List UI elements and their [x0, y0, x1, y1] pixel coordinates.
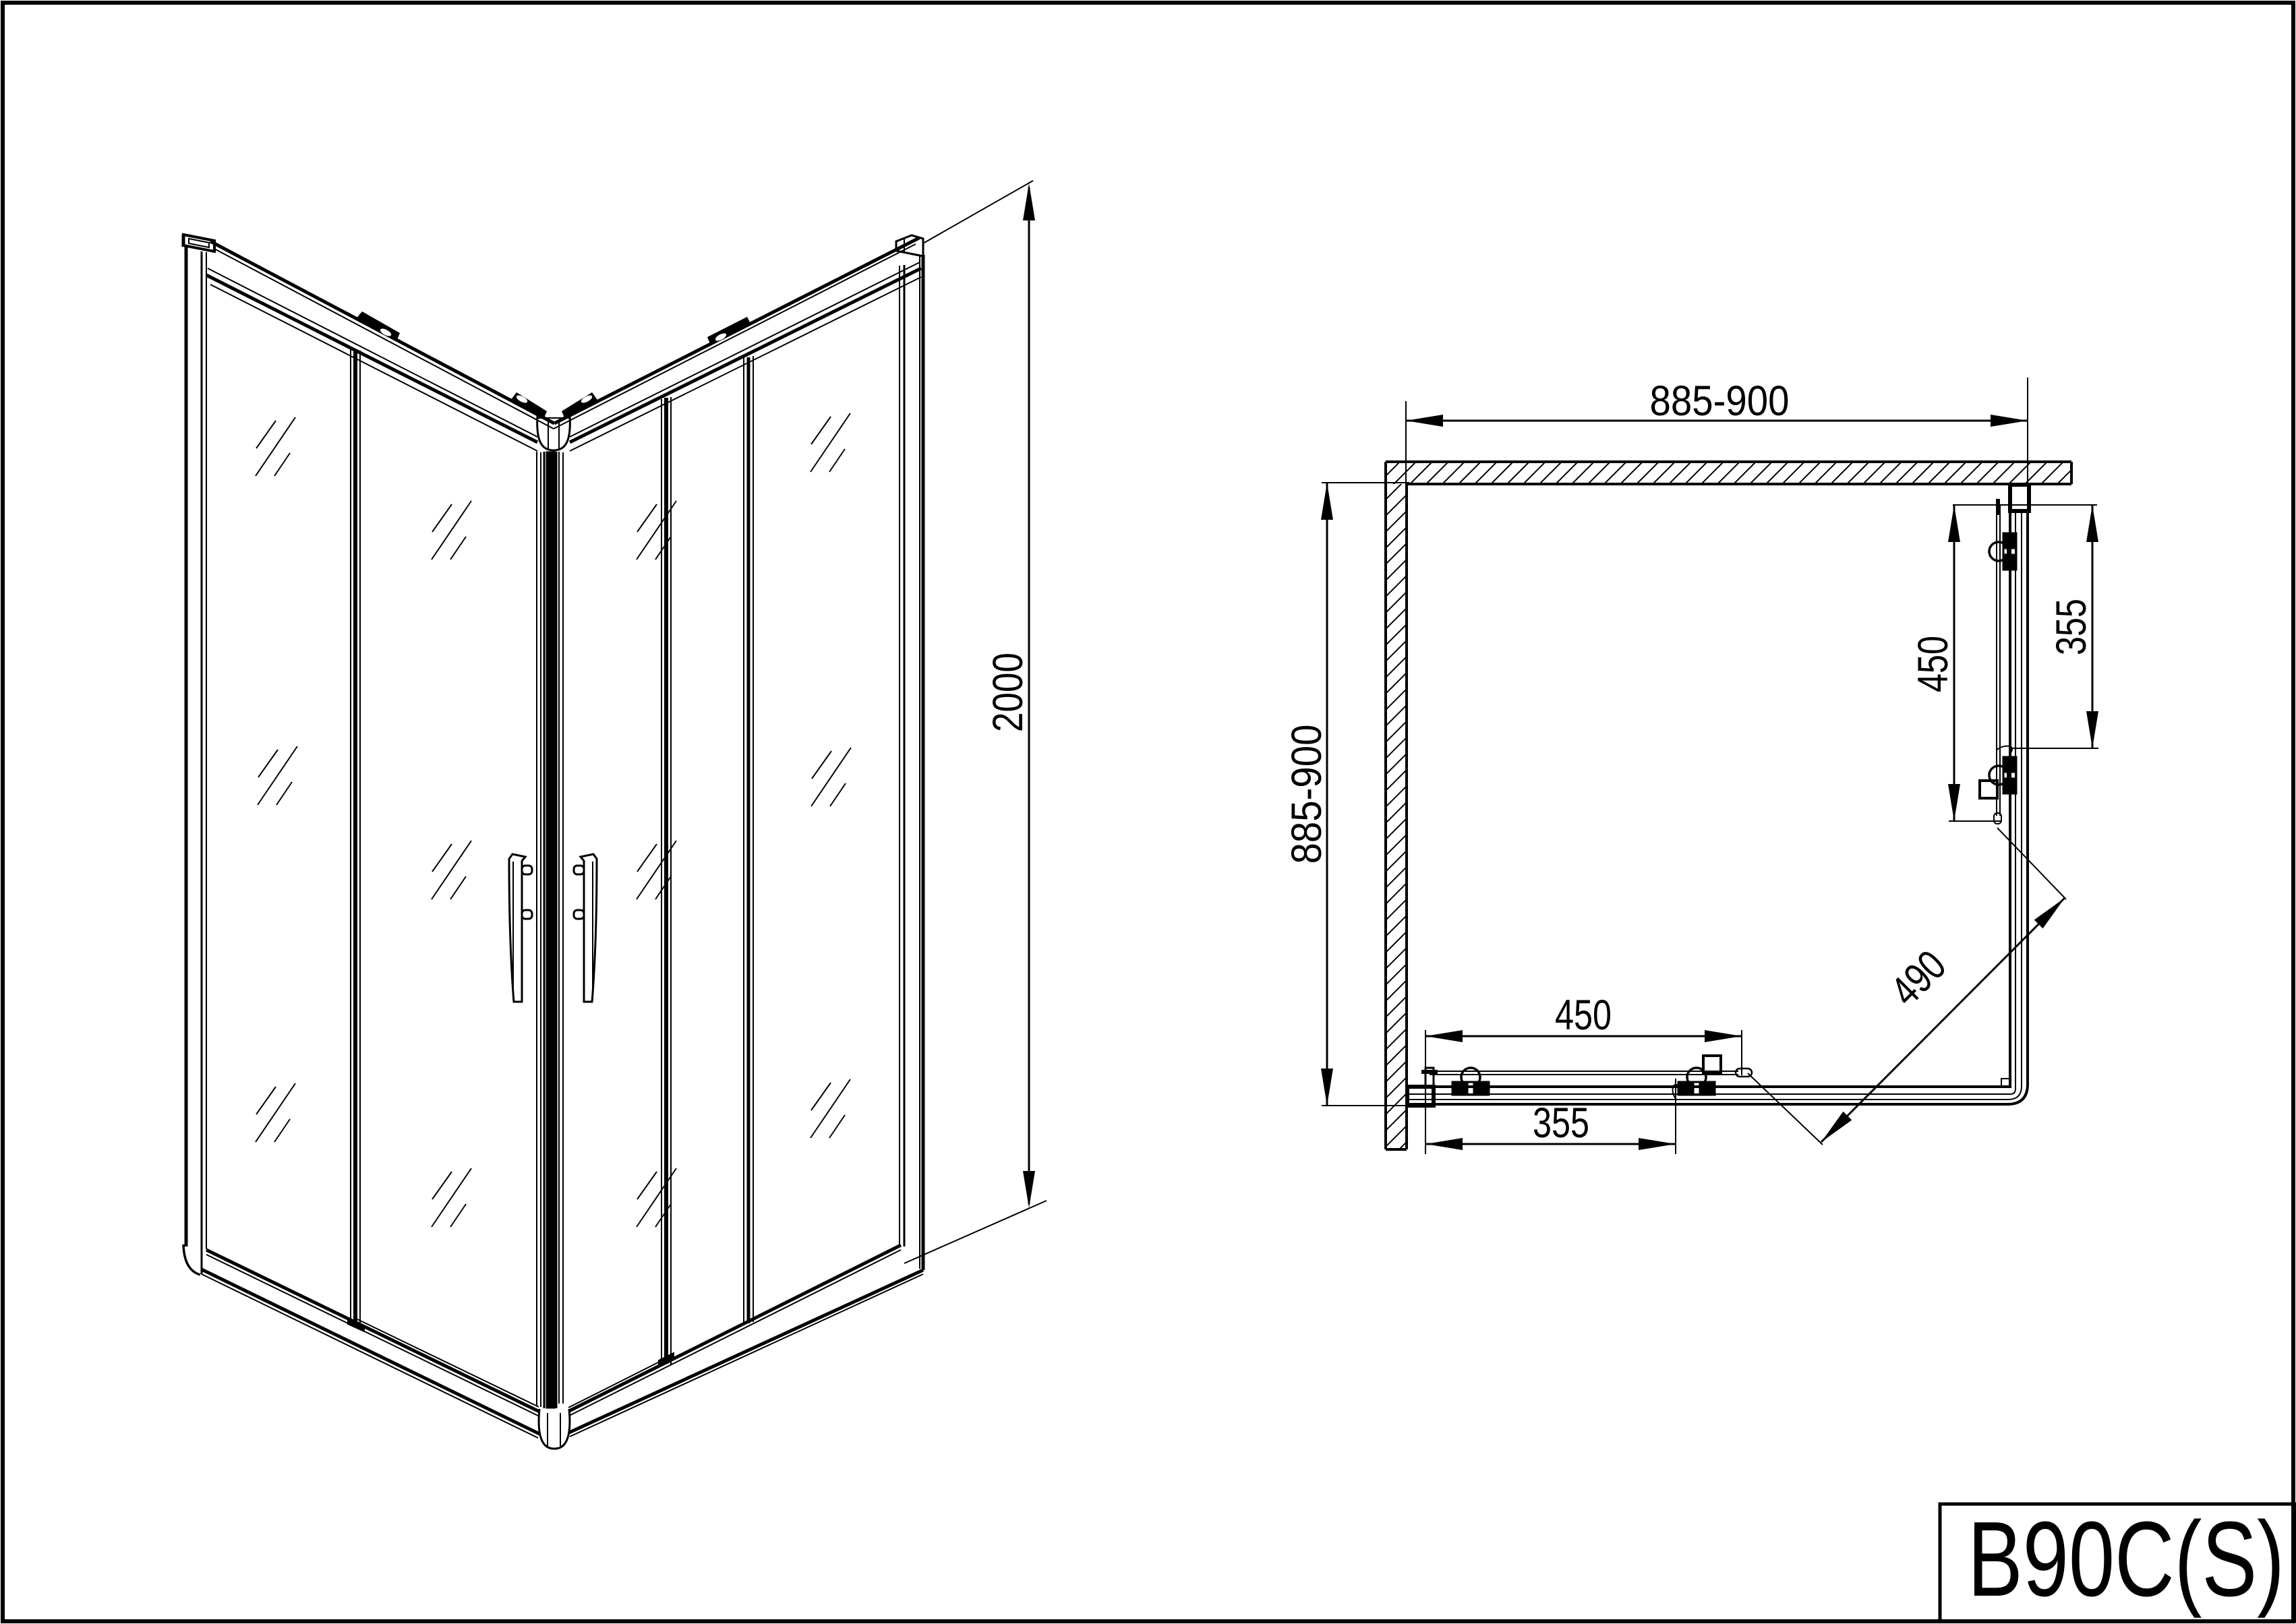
svg-text:885-900: 885-900 — [1283, 725, 1330, 864]
svg-text:450: 450 — [1555, 992, 1612, 1039]
svg-text:B90C(S): B90C(S) — [1968, 1500, 2285, 1619]
svg-text:2000: 2000 — [984, 653, 1032, 732]
svg-text:885-900: 885-900 — [1650, 378, 1790, 425]
svg-text:355: 355 — [1533, 1100, 1589, 1147]
svg-text:490: 490 — [1882, 942, 1955, 1015]
svg-text:450: 450 — [1910, 636, 1957, 692]
svg-text:355: 355 — [2048, 599, 2095, 655]
